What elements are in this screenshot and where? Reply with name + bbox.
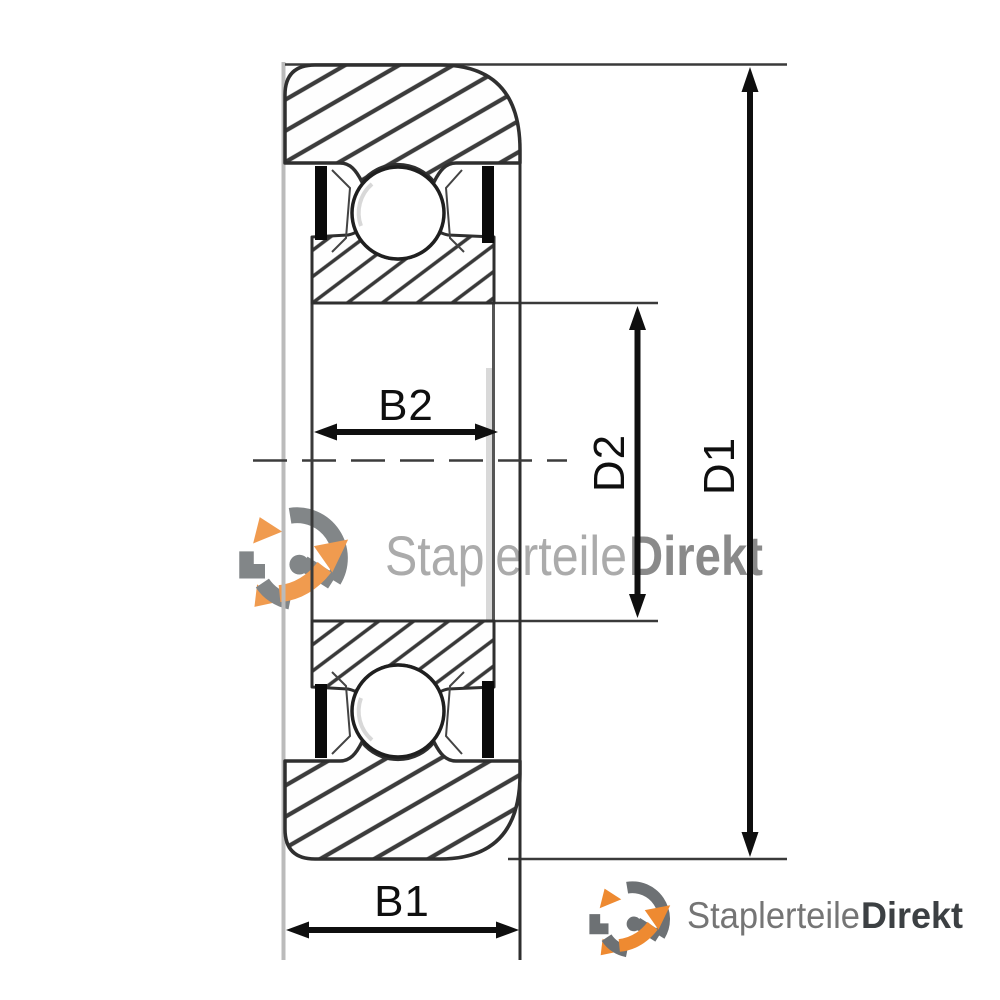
bore-right-shading [486, 368, 493, 620]
outer-ring-top-section [285, 65, 520, 182]
b1-arrowhead-left [286, 922, 309, 939]
b1-arrowhead-right [496, 922, 519, 939]
d2-arrowhead-bottom [629, 594, 646, 618]
watermark-logo-icon [247, 515, 349, 607]
seal-top-right [482, 166, 494, 243]
ball-bottom [352, 665, 444, 757]
footer-logo: Staplerteile Direkt [595, 887, 963, 955]
seal-top-left [315, 166, 327, 240]
watermark-brand-regular: Staplerteile [385, 524, 627, 587]
b2-label: B2 [378, 381, 434, 430]
d1-label: D1 [695, 437, 744, 495]
d2-arrowhead-top [629, 306, 646, 330]
d1-arrowhead-bottom [742, 832, 759, 857]
d2-label: D2 [585, 434, 634, 492]
b1-label: B1 [374, 877, 430, 926]
d1-arrowhead-top [742, 67, 759, 92]
ball-top [352, 167, 444, 259]
seal-bottom-left [315, 684, 327, 758]
dimension-b1: B1 [286, 877, 519, 939]
watermark-brand-bold: Direkt [629, 524, 763, 587]
dimension-b2: B2 [314, 381, 498, 441]
outer-ring-bottom-section [285, 742, 520, 859]
bearing-technical-drawing-page: Staplerteile Direkt B2 D2 [0, 0, 1000, 1000]
seal-bottom-right [482, 681, 494, 758]
dimension-d1: D1 [695, 67, 759, 857]
b2-arrowhead-left [314, 424, 337, 441]
footer-brand-regular: Staplerteile [687, 895, 860, 936]
bearing-diagram-canvas: Staplerteile Direkt B2 D2 [0, 0, 1000, 1000]
watermark: Staplerteile Direkt [247, 515, 763, 607]
footer-logo-icon [595, 887, 670, 955]
footer-brand-bold: Direkt [861, 895, 963, 936]
